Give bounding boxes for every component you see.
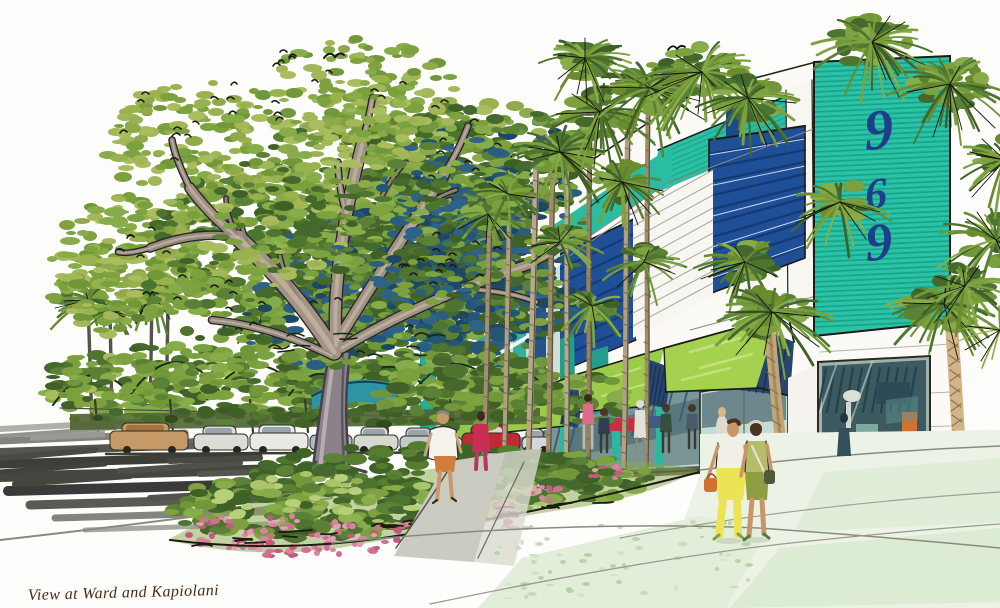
svg-text:9: 9 (862, 96, 895, 163)
